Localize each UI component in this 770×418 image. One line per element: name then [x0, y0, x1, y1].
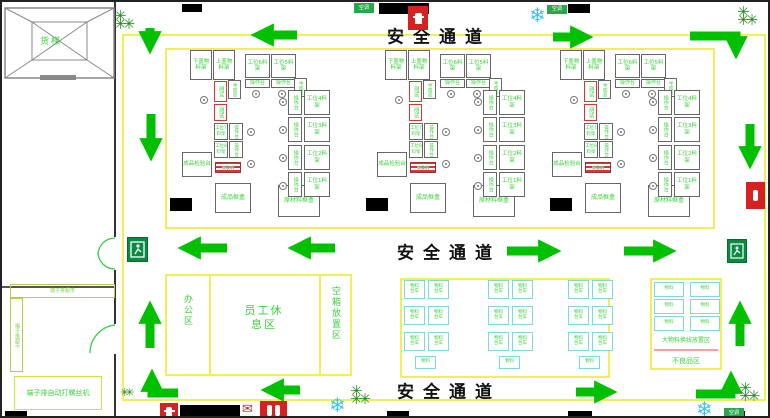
fan-snowflake-icon: ❄: [696, 399, 713, 418]
striped-machine: 点胶机: [215, 162, 241, 173]
exit-sign-icon: [127, 237, 148, 262]
rack-ws3: 工位3料架: [304, 117, 330, 142]
operator-chair: [279, 154, 287, 162]
operator-chair: [617, 128, 625, 136]
operation-desk: 操作台: [288, 172, 302, 197]
pillar: [180, 405, 240, 418]
operator-chair: [247, 160, 255, 168]
office-rest-area: 办公区 员工休息区 空箱放置区: [165, 274, 352, 376]
test-station: 测试: [409, 104, 422, 121]
elevator-label: 货梯: [40, 34, 62, 47]
operation-desk: 操作台: [483, 90, 497, 115]
inspection-desk: 成品检验台: [377, 152, 407, 177]
finished-goods-box: 成品框盒: [585, 183, 621, 213]
rack-ws1: 工位1料架: [674, 172, 700, 197]
operator-chair: [442, 160, 450, 168]
test-station: 测试: [214, 81, 227, 102]
ac-sign-label: 空调: [359, 6, 369, 11]
terminal-shelf-left: 端子排超市: [10, 298, 23, 372]
operator-chair: [474, 154, 482, 162]
pillar: [5, 411, 27, 418]
striped-machine: 点胶机: [410, 162, 436, 173]
finished-goods-box: 成品框盒: [410, 183, 446, 213]
pillar: [568, 4, 590, 13]
operation-desk: 操作台: [599, 123, 613, 140]
terminal-shelf-top: 端子排超市: [10, 284, 115, 298]
operation-desk: 操作台: [641, 79, 666, 88]
rack-upper-cover: 上盖物料架: [583, 50, 605, 80]
operator-chair: [200, 96, 208, 104]
operator-chair: [649, 182, 657, 190]
finished-goods-box: 成品框盒: [215, 183, 251, 213]
corridor-label-top: 安全通道: [387, 23, 491, 48]
operator-chair: [474, 98, 482, 106]
operator-chair: [473, 90, 481, 98]
plant-icon: ✳✳✳: [114, 12, 131, 29]
test-station: 测试: [214, 104, 227, 121]
cart-label: 台车: [410, 290, 419, 295]
operator-chair: [649, 154, 657, 162]
rack-ws7: 工位7料架: [409, 123, 423, 140]
operator-chair: [649, 98, 657, 106]
rack-ws3: 工位3料架: [499, 117, 525, 142]
operator-chair: [247, 128, 255, 136]
operation-desk: 操作台: [288, 90, 302, 115]
corridor-label-bottom: 安全通道: [397, 378, 501, 403]
semi-finished-rack: 半成品: [423, 80, 436, 99]
screw-machine-label: 端子排自动打螺丝机: [27, 388, 90, 398]
freight-elevator: [4, 6, 124, 86]
elevator-door: [40, 75, 76, 80]
rack-ws4: 工位4料架: [499, 90, 525, 115]
operation-desk: 操作台: [466, 79, 491, 88]
operation-desk: 操作台: [483, 117, 497, 142]
operation-desk: 操作台: [658, 90, 672, 115]
operator-chair: [442, 128, 450, 136]
operator-chair: [279, 98, 287, 106]
operation-desk: 操作台: [440, 79, 465, 88]
rack-ws2: 工位2料架: [674, 145, 700, 170]
operation-desk: 操作台: [424, 123, 438, 140]
plant-icon: ✳✳✳: [350, 387, 367, 404]
test-station: 测试: [584, 104, 597, 121]
rack-ws6: 工位6料架: [245, 54, 270, 78]
ac-sign: 空调: [724, 408, 744, 418]
rack-ws5: 工位5料架: [641, 54, 666, 78]
operation-desk: 操作台: [658, 172, 672, 197]
ac-sign: 空调: [354, 3, 374, 13]
area-divider-red: [654, 349, 718, 351]
operation-desk: 操作台: [599, 141, 613, 158]
rest-area-label: 员工休息区: [240, 304, 288, 333]
plant-icon: ✳✳✳: [737, 8, 754, 25]
striped-machine-label: 点胶机: [417, 166, 429, 170]
fire-hydrant-icon: [408, 6, 428, 30]
rack-ws4: 工位4料架: [304, 90, 330, 115]
terminal-shelf-top-label: 端子排超市: [50, 289, 75, 294]
rack-upper-cover: 上盖物料架: [213, 50, 235, 80]
corridor-label-middle: 安全通道: [397, 239, 501, 264]
striped-machine-label: 点胶机: [592, 166, 604, 170]
operation-desk: 操作台: [615, 79, 640, 88]
rack-lower-cover: 下盖物料架: [560, 50, 582, 80]
rack-ws8: 工位8料架: [584, 141, 598, 158]
pillar: [568, 411, 592, 418]
cart-label: 台车: [494, 290, 503, 295]
test-station: 测试: [409, 81, 422, 102]
rack-ws4: 工位4料架: [674, 90, 700, 115]
cart-group-1: 物料台车 物料台车 物料台车 物料台车 物料台车 物料台车 物料: [404, 280, 450, 372]
area-divider: [319, 276, 321, 374]
operator-chair: [447, 90, 455, 98]
rack-ws6: 工位6料架: [615, 54, 640, 78]
operator-chair: [279, 182, 287, 190]
operator-chair: [278, 90, 286, 98]
operation-desk: 操作台: [229, 123, 243, 140]
rack-lower-cover: 下盖物料架: [385, 50, 407, 80]
operation-desk: 操作台: [658, 145, 672, 170]
exit-sign-icon: [727, 239, 747, 263]
big-material-label: 大物料换线放置区: [653, 335, 719, 344]
screw-machine: 端子排自动打螺丝机: [14, 376, 102, 410]
rack-ws1: 工位1料架: [499, 172, 525, 197]
plant-icon: ✳✳✳: [739, 384, 756, 401]
ac-sign: 空调: [547, 5, 567, 14]
rack-ws2: 工位2料架: [499, 145, 525, 170]
rack-ws1: 工位1料架: [304, 172, 330, 197]
operation-desk: 操作台: [658, 117, 672, 142]
empty-box-area-label: 空箱放置区: [329, 286, 342, 341]
operator-chair: [649, 126, 657, 134]
operation-desk: 操作台: [229, 141, 243, 158]
operation-desk: 操作台: [483, 145, 497, 170]
pillar: [170, 198, 192, 211]
operation-desk: 操作台: [424, 141, 438, 158]
area-divider: [209, 276, 211, 374]
rack-ws3: 工位3料架: [674, 117, 700, 142]
factory-floor-plan: 货梯 安全通道 安全通道 安全通道 下盖物料架 上盖物料架 工位6料架 工位5料…: [0, 0, 770, 418]
rack-ws2: 工位2料架: [304, 145, 330, 170]
pillar: [387, 411, 409, 418]
first-aid-box-icon: ✉: [242, 403, 253, 416]
rack-lower-cover: 下盖物料架: [190, 50, 212, 80]
production-cluster-1: 下盖物料架 上盖物料架 工位6料架 工位5料架 操作台 操作台 半成品 半成品 …: [190, 50, 340, 220]
production-cluster-3: 下盖物料架 上盖物料架 工位6料架 工位5料架 操作台 操作台 半成品 半成品 …: [560, 50, 710, 220]
rack-ws5: 工位5料架: [271, 54, 296, 78]
plant-icon: ✳✳: [120, 390, 130, 396]
fan-snowflake-icon: ❄: [329, 395, 346, 415]
rack-ws5: 工位5料架: [466, 54, 491, 78]
test-station: 测试: [584, 81, 597, 102]
changeover-area: 物料 物料 物料 物料 物料 物料 大物料换线放置区 不良品区: [650, 278, 722, 370]
terminal-shelf-left-label: 端子排超市: [14, 323, 19, 348]
operation-desk: 操作台: [245, 79, 270, 88]
semi-finished-rack: 半成品: [598, 80, 611, 99]
rack-ws7: 工位7料架: [214, 123, 228, 140]
cart-group-3: 物料台车 物料台车 物料台车 物料台车 物料台车 物料台车 物料: [568, 280, 614, 372]
operation-desk: 操作台: [483, 172, 497, 197]
cart-group-2: 物料台车 物料台车 物料台车 物料台车 物料台车 物料台车 物料: [488, 280, 534, 372]
left-wall-upper: [114, 2, 116, 237]
rack-ws7: 工位7料架: [584, 123, 598, 140]
striped-machine-label: 点胶机: [222, 166, 234, 170]
changeover-carts: 物料 物料 物料 物料 物料 物料: [654, 282, 720, 332]
pillar: [182, 4, 202, 12]
operation-desk: 操作台: [271, 79, 296, 88]
operation-desk: 操作台: [288, 145, 302, 170]
striped-machine: 点胶机: [585, 162, 611, 173]
rack-ws8: 工位8料架: [214, 141, 228, 158]
inspection-desk: 成品检验台: [182, 152, 212, 177]
defective-area-label: 不良品区: [653, 356, 719, 366]
cart-label: 台车: [574, 290, 583, 295]
fire-extinguisher-box-icon: [260, 401, 287, 418]
left-wall-lower: [114, 354, 116, 418]
operation-desk: 操作台: [288, 117, 302, 142]
operator-chair: [474, 126, 482, 134]
operator-chair: [570, 96, 578, 104]
operator-chair: [474, 182, 482, 190]
operator-chair: [617, 160, 625, 168]
fire-hydrant-icon: [160, 403, 178, 418]
operator-chair: [395, 96, 403, 104]
operator-chair: [279, 126, 287, 134]
operator-chair: [622, 90, 630, 98]
rack-ws8: 工位8料架: [409, 141, 423, 158]
rack-ws6: 工位6料架: [440, 54, 465, 78]
rack-upper-cover: 上盖物料架: [408, 50, 430, 80]
semi-finished-rack: 半成品: [228, 80, 241, 99]
inspection-desk: 成品检验台: [552, 152, 582, 177]
operator-chair: [252, 90, 260, 98]
office-area-label: 办公区: [181, 294, 194, 327]
fan-snowflake-icon: ❄: [529, 5, 546, 25]
production-cluster-2: 下盖物料架 上盖物料架 工位6料架 工位5料架 操作台 操作台 半成品 半成品 …: [385, 50, 535, 220]
operator-chair: [648, 90, 656, 98]
fire-extinguisher-sign-icon: [746, 182, 765, 209]
